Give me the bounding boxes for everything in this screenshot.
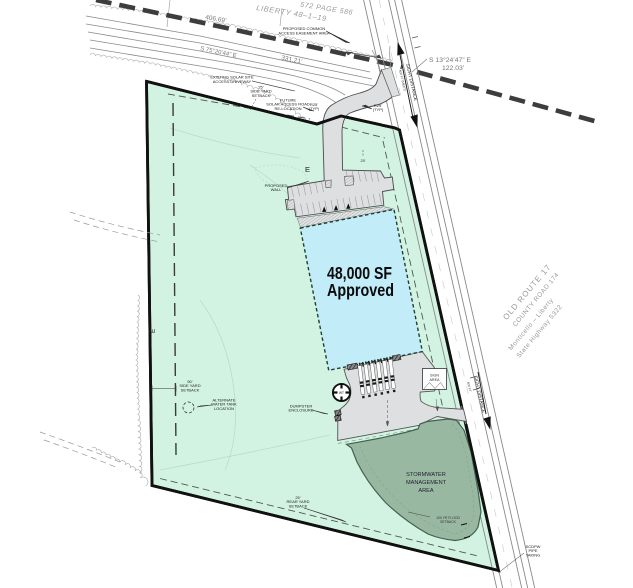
svg-text:AREA: AREA [429,378,440,382]
svg-text:ACCESS DRIVEWAY: ACCESS DRIVEWAY [213,79,252,84]
svg-text:MANAGEMENT: MANAGEMENT [406,480,447,486]
svg-text:S 13°24’47” E: S 13°24’47” E [429,56,471,64]
svg-text:122.03’: 122.03’ [442,65,465,72]
svg-text:SETBACK: SETBACK [289,503,308,508]
svg-text:SIGN: SIGN [430,374,439,378]
svg-text:AREA: AREA [418,488,434,494]
svg-text:RE-LOCATION: RE-LOCATION [274,106,301,111]
svg-text:STORMWATER: STORMWATER [406,472,446,478]
svg-text:TAKING: TAKING [526,552,541,557]
svg-text:SETBACK: SETBACK [181,387,200,392]
svg-text:LOCATION: LOCATION [214,406,234,411]
svg-text:25’: 25’ [360,159,365,163]
svg-text:ACCESS EASEMENT AREA: ACCESS EASEMENT AREA [278,30,330,35]
svg-text:(TYP): (TYP) [309,106,320,111]
svg-text:SETBACK: SETBACK [252,93,271,98]
svg-text:(TYP): (TYP) [373,107,384,112]
svg-text:ENCLOSURE: ENCLOSURE [289,408,314,413]
svg-text:Approved: Approved [327,280,394,300]
svg-text:E: E [305,165,310,174]
svg-text:SETBACK: SETBACK [440,520,457,524]
svg-text:E: E [150,328,157,333]
svg-text:WALL: WALL [271,187,283,192]
svg-text:WT: WT [339,391,344,395]
